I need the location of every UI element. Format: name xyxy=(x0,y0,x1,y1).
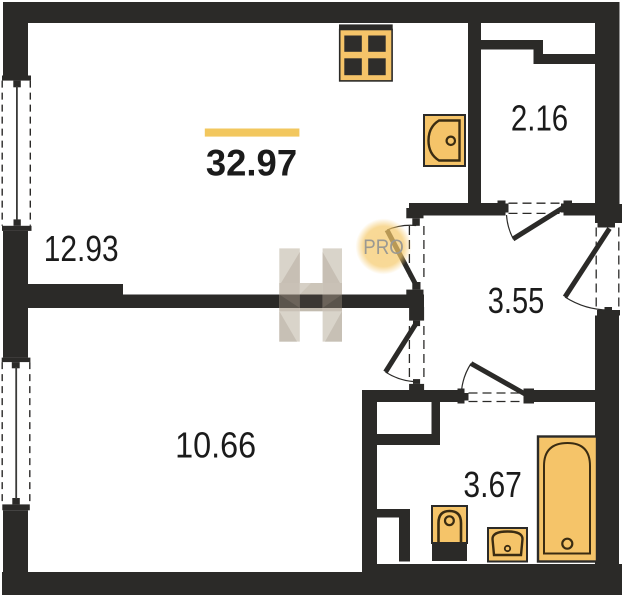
svg-text:2.16: 2.16 xyxy=(511,97,568,138)
svg-text:3.67: 3.67 xyxy=(463,464,522,505)
svg-text:3.55: 3.55 xyxy=(488,280,545,321)
svg-text:10.66: 10.66 xyxy=(175,425,256,466)
svg-text:PRO: PRO xyxy=(363,235,404,259)
svg-text:12.93: 12.93 xyxy=(44,228,119,269)
svg-text:32.97: 32.97 xyxy=(206,142,297,183)
